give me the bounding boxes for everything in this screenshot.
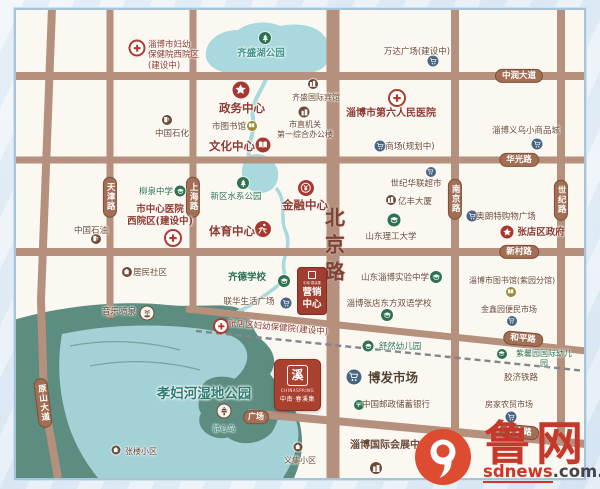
sales-center-line1: 营销 (298, 287, 326, 298)
liuquan-middle-school-label: 柳泉中学 (139, 187, 173, 197)
zibo-maternity-west-hospital-label: 淄博市妇幼 保健院西院区 (建设中) (148, 40, 199, 71)
zhanglou-community-label: 张楼小区 (125, 447, 157, 457)
road-label-wangshe-road: 王舍路 (499, 423, 540, 441)
project-name-en: CHINASPRING (275, 388, 320, 393)
library-ziyuan-branch-icon (506, 287, 516, 297)
road-label-zhongrun-avenue: 中润大道 (495, 69, 543, 83)
century-hualian-supermarket-label: 世纪华联超市 (390, 179, 441, 189)
central-hospital-west-icon (164, 229, 182, 247)
city-library-icon (247, 121, 257, 131)
yiwu-commodity-city-icon (532, 139, 543, 150)
zhangdian-government-label: 张店区政府 (517, 227, 565, 239)
century-hualian-supermarket-icon (426, 167, 436, 177)
residential-community-label: 居民社区 (133, 268, 167, 278)
oriental-bilingual-school-label: 淄博张店东方双语学校 (346, 299, 431, 309)
music-fountain-label: 音乐喷泉 (102, 307, 136, 317)
sports-center-icon (255, 221, 271, 237)
road-label-plaza: 广场 (243, 410, 269, 424)
qisheng-intl-hotel-icon (308, 79, 318, 89)
zhanglou-community-icon (112, 446, 121, 455)
fangjia-market-icon (506, 412, 517, 423)
qisheng-lake-park-label: 齐盛湖公园 (237, 48, 285, 60)
jingxin-island-label: 静心岛 (213, 424, 236, 433)
sales-center-brand: 中南·春溪集 (300, 280, 324, 285)
library-ziyuan-branch-label: 淄博市图书馆(紫园分馆) (469, 276, 555, 286)
qisheng-lake-park-icon (259, 32, 271, 44)
sinopec-label: 中国石化 (155, 129, 189, 139)
map-screenshot: 北京路 中南·春溪集 营销 中心 溪 CHINASPRING 中南·春溪集 中润… (0, 0, 600, 489)
postal-savings-bank-label: 中国邮政储蓄银行 (362, 400, 430, 410)
jinxinyuan-market-label: 金鑫园便民市场 (481, 305, 537, 315)
shandong-univ-tech-label: 山东理工大学 (365, 232, 416, 242)
poi-layer: 北京路 中南·春溪集 营销 中心 溪 CHINASPRING 中南·春溪集 中润… (14, 8, 586, 480)
finance-center-label: 金融中心 (282, 198, 328, 212)
water-system-park-label: 新区水系公园 (210, 192, 261, 202)
finance-center-icon (298, 180, 314, 196)
project-name-cn: 中南·春溪集 (275, 394, 320, 403)
zhangdian-maternity-hospital-icon (213, 318, 229, 334)
central-hospital-west-label: 市中心医院 西院区(建设中) (127, 204, 193, 227)
jingxin-island-pagoda-icon (217, 404, 232, 419)
experimental-middle-school-label: 山东淄博实验中学 (361, 273, 429, 283)
yiji-community-icon (294, 443, 303, 452)
project-logo: 溪 CHINASPRING 中南·春溪集 (274, 359, 321, 411)
jinxinyuan-market-icon (507, 316, 517, 326)
experimental-middle-school-icon (430, 271, 442, 283)
aolangte-mall-label: 奥朗特购物广场 (476, 212, 536, 222)
yiji-community-label: 义集小区 (284, 456, 316, 466)
intl-convention-center-icon (370, 462, 382, 474)
culture-center-icon (256, 138, 271, 153)
shandong-univ-tech-icon (388, 214, 401, 227)
jiaoji-railway-label: 胶济铁路 (504, 373, 538, 383)
mall-planned-label: 商场(规划中) (385, 142, 434, 152)
qide-school-label: 齐德学校 (228, 272, 266, 284)
bofa-market-icon (347, 370, 362, 385)
yiwu-commodity-city-label: 淄博义乌小商品城 (492, 126, 560, 136)
government-center-icon (233, 82, 250, 99)
sales-center-line2: 中心 (298, 299, 326, 310)
map-frame: 北京路 中南·春溪集 营销 中心 溪 CHINASPRING 中南·春溪集 中润… (14, 8, 586, 480)
road-label-yuanshan-avenue: 原山大道 (33, 377, 53, 428)
oriental-bilingual-school-icon (381, 309, 393, 321)
government-center-label: 政务中心 (219, 101, 265, 115)
sixth-peoples-hospital-icon (388, 89, 406, 107)
zixinyuan-kindergarten-label: 紫馨园国际幼儿园 (516, 349, 572, 369)
water-system-park-icon (237, 177, 249, 189)
yifeng-tower-icon (386, 195, 396, 205)
project-seal-icon: 溪 (287, 365, 308, 386)
shuran-kindergarten-icon (363, 341, 374, 352)
municipal-office-label: 市直机关 第一综合办公楼 (277, 120, 333, 140)
culture-center-label: 文化中心 (209, 139, 255, 153)
zixinyuan-kindergarten-icon (497, 349, 507, 359)
lianhua-life-plaza-icon (281, 298, 292, 309)
residential-community-icon (122, 267, 132, 277)
road-label-shiji-road: 世纪路 (554, 180, 568, 221)
yifeng-tower-label: 亿丰大厦 (398, 197, 432, 207)
sinopec-icon (162, 115, 172, 125)
road-label-heping-road: 和平路 (503, 330, 544, 348)
road-label-huaguang-road: 华光路 (499, 153, 539, 167)
lianhua-life-plaza-label: 联华生活广场 (223, 297, 274, 307)
liuquan-middle-school-icon (175, 186, 186, 197)
shuran-kindergarten-label: 舒然幼儿园 (379, 342, 422, 352)
city-library-label: 市图书馆 (212, 122, 246, 132)
music-fountain-icon (140, 306, 155, 321)
sales-center-marker: 中南·春溪集 营销 中心 (297, 267, 327, 315)
sports-center-label: 体育中心 (209, 224, 255, 238)
petrochina-label: 中国石油 (74, 226, 108, 236)
road-label-nanjing-road: 南京路 (448, 179, 462, 220)
municipal-office-icon (299, 107, 310, 118)
zhangdian-government-icon (501, 226, 514, 239)
qide-school-icon (278, 275, 290, 287)
mall-planned-icon (375, 141, 386, 152)
road-label-xincun-road: 新村路 (499, 245, 539, 259)
fangjia-market-label: 房家农贸市场 (485, 400, 533, 410)
xiaofu-river-wetland-park-label: 孝妇河湿地公园 (157, 386, 252, 402)
wanda-plaza-label: 万达广场(建设中) (384, 47, 450, 57)
zhangdian-maternity-hospital-label: 张店区妇幼保健院(建设中) (228, 319, 329, 338)
zibo-maternity-west-hospital-icon (129, 40, 146, 57)
sales-center-seal-icon (308, 271, 316, 279)
sixth-peoples-hospital-label: 淄博市第六人民医院 (346, 108, 436, 120)
bofa-market-label: 博发市场 (368, 370, 418, 385)
qisheng-intl-hotel-label: 齐盛国际宾馆 (292, 93, 340, 103)
intl-convention-center-label: 淄博国际会展中心 (350, 440, 430, 452)
road-label-tianjin-road: 天津路 (103, 177, 117, 218)
